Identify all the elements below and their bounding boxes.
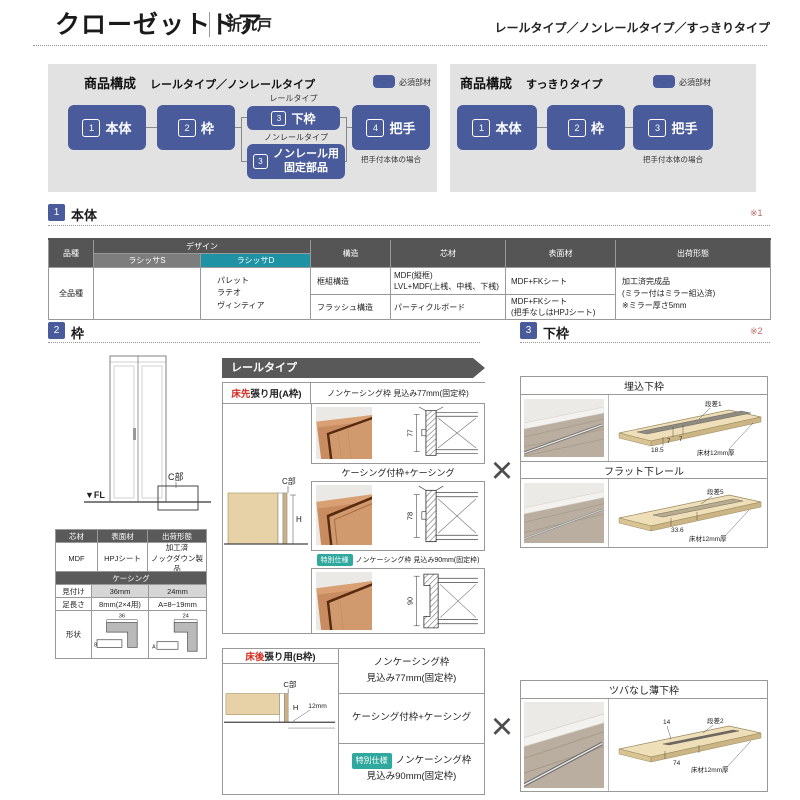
catalog-page: クローゼットドア 折れ戸 レールタイプ／ノンレールタイプ／すっきりタイプ 商品構… [0,0,800,800]
frame-b-left-cell: 床後張り用(B枠) C部 H 12mm [223,649,339,794]
handle-note: 把手付本体の場合 [346,154,436,165]
composition-subtitle: すっきりタイプ [526,76,603,92]
special-spec-badge: 特別仕様 [352,753,392,769]
c-part-label: C部 [168,471,184,482]
frame-b-row2: ケーシング付枠+ケーシング [338,694,485,744]
svg-text:33.6: 33.6 [671,527,684,534]
flow-label-lower-frame: 下枠 [291,110,315,127]
cell-surface-2: MDF+FKシート (把手なしはHPJシート) [506,295,616,320]
cell-divider [608,395,609,461]
legend-swatch [373,75,395,88]
flow-label-body: 本体 [105,118,131,137]
flow-label-frame: 枠 [201,118,214,137]
cell-structure-2: フラッシュ構造 [311,295,391,320]
connector [346,117,347,162]
col-header-lasissa-d: ラシッサD [201,254,311,268]
cross-mark: × [484,452,520,490]
svg-text:段差2: 段差2 [707,716,724,725]
flow-num-2: 2 [568,119,586,137]
section-3-badge: 3 [520,322,537,339]
rail-type-banner: レールタイプ [222,358,485,378]
flow-box-body: 1 本体 [457,105,537,150]
title-divider [209,12,210,37]
section-2-rule [48,342,480,343]
floor-rail-photo [524,399,604,457]
door-corner-photo [316,572,372,630]
lower-frame-2-diagram: 段差5 33.6 床材12mm厚 [613,482,765,544]
cell-lasissa-d-designs: パレット ラテオ ヴィンティア [201,268,311,320]
legend-label: 必須部材 [399,77,431,88]
cross-mark: × [484,708,520,746]
casing-r3-label: 形状 [56,611,92,659]
casing-r2-v1: 8mm(2×4用) [92,598,149,611]
flow-box-body: 1 本体 [68,105,146,150]
section-1-rule [48,225,770,226]
connector [241,117,247,118]
flow-num-4: 4 [366,119,384,137]
casing-r1-label: 見付け [56,585,92,598]
core-spec-table: 芯材 表面材 出荷形態 MDF HPJシート 加工済ノックダウン製品 [55,529,207,576]
door-elevation-diagram: ▼FL C部 [48,350,213,530]
connector [146,127,157,128]
col-header-type: 品種 [49,239,94,268]
svg-text:段差5: 段差5 [707,487,724,496]
section-1-ref: ※1 [750,208,763,219]
svg-text:78: 78 [406,512,415,520]
flow-box-nonrail-parts: 3 ノンレール用固定部品 [247,144,345,179]
casing-r1-v2: 24mm [149,585,207,598]
frame-section-diagram-78: 78 [379,485,481,547]
svg-text:12mm: 12mm [308,703,327,710]
fl-label: ▼FL [85,490,105,500]
frame-a-row1-content: 77 [311,404,485,463]
section-2-title: 枠 [71,323,84,342]
svg-text:18.5: 18.5 [651,447,664,454]
svg-text:床材12mm厚: 床材12mm厚 [691,765,729,774]
door-corner-photo [316,407,372,459]
composition-subtitle: レールタイプ／ノンレールタイプ [150,76,315,92]
flow-label-handle: 把手 [389,118,415,137]
col-header-surface: 表面材 [506,239,616,268]
frame-section-diagram-90: 90 [379,571,481,631]
connector [537,127,547,128]
frame-a-section-diagram: C部 H [224,474,310,566]
flow-num-2: 2 [178,119,196,137]
connector [241,117,242,162]
connector [625,127,633,128]
frame-a-row2-title-real: ケーシング付枠+ケーシング [311,463,485,482]
lower-frame-1-title: 埋込下枠 [521,377,767,395]
frame-b-header: 床後張り用(B枠) [223,649,338,664]
casing-shape-36: 36 8 [92,611,149,659]
cell-structure-1: 框組構造 [311,268,391,295]
col-header-structure: 構造 [311,239,391,268]
door-handle [133,428,136,440]
cell-surface-1: MDF+FKシート [506,268,616,295]
cell-lasissa-s [94,268,201,320]
frame-a-box: 床先張り用(A枠) ノンケーシング枠 見込み77mm(固定枠) C部 H [222,382,485,634]
spec-h-core: 芯材 [56,530,98,543]
branch-rail-label: レールタイプ [247,93,340,104]
cell-core-1: MDF(縦框) LVL+MDF(上桟、中桟、下桟) [391,268,506,295]
col-header-shipping: 出荷形態 [616,239,771,268]
branch-nonrail-label: ノンレールタイプ [247,132,345,143]
frame-a-row3-content: 90 [311,569,485,634]
frame-a-left-cell: C部 H [223,404,312,634]
lower-frame-1-content: 段差1 7 7 18.5 床材12mm厚 [521,395,767,461]
type-list: レールタイプ／ノンレールタイプ／すっきりタイプ [494,19,770,36]
flow-label-frame: 枠 [591,118,604,137]
handle-note: 把手付本体の場合 [628,154,718,165]
frame-b-row3: 特別仕様ノンケーシング枠 見込み90mm(固定枠) [338,744,485,794]
flow-box-handle: 4 把手 [352,105,430,150]
svg-text:A: A [152,644,156,650]
door-style-label: 折れ戸 [227,14,272,35]
cell-core-2: パーティクルボード [391,295,506,320]
special-spec-badge: 特別仕様 [317,554,353,566]
legend-swatch [653,75,675,88]
connector [346,127,352,128]
frame-a-header: 床先張り用(A枠) [223,383,311,404]
cell-divider [608,699,609,791]
spec-h-surface: 表面材 [98,530,148,543]
flow-num-3b: 3 [253,154,268,169]
svg-text:C部: C部 [282,476,296,486]
frame-section-diagram-77: 77 [379,406,481,460]
svg-text:14: 14 [663,719,671,726]
flow-box-frame: 2 枠 [547,105,625,150]
svg-text:H: H [296,515,302,524]
section-3-ref: ※2 [750,326,763,337]
cell-divider [608,479,609,547]
frame-a-row2-content: 78 [311,482,485,550]
svg-text:90: 90 [406,597,415,605]
composition-panel-rail: 商品構成 レールタイプ／ノンレールタイプ 必須部材 レールタイプ ノンレールタイ… [48,64,437,192]
connector [241,161,247,162]
section-3-title: 下枠 [543,323,569,342]
floor-rail-photo [524,702,604,788]
flow-label-nonrail-parts: ノンレール用固定部品 [273,148,339,174]
casing-shape-24: 24 A [149,611,207,659]
casing-r2-v2: A=8~19mm [149,598,207,611]
lower-frame-box: 埋込下枠 段差1 7 [520,376,768,548]
svg-text:24: 24 [182,613,189,619]
svg-text:床材12mm厚: 床材12mm厚 [697,448,735,457]
col-header-core: 芯材 [391,239,506,268]
flow-num-3: 3 [648,119,666,137]
col-header-lasissa-s: ラシッサS [94,254,201,268]
page-header: クローゼットドア 折れ戸 レールタイプ／ノンレールタイプ／すっきりタイプ [0,0,800,48]
door-corner-photo [316,485,372,545]
composition-title: 商品構成 [84,73,136,92]
lower-frame-1-diagram: 段差1 7 7 18.5 床材12mm厚 [613,397,765,459]
frame-b-box: 床後張り用(B枠) C部 H 12mm ノンケーシング枠 見込み77mm(固定枠… [222,648,485,795]
thin-lower-frame-box: ツバなし薄下枠 14 段差2 [520,680,768,792]
col-header-design: デザイン [94,239,311,254]
flow-label-handle: 把手 [671,118,697,137]
flow-box-handle: 3 把手 [633,105,713,150]
flow-box-lower-frame: 3 下枠 [247,106,340,130]
svg-text:36: 36 [119,613,125,619]
svg-text:H: H [293,703,299,712]
svg-text:C部: C部 [283,679,297,689]
thin-lower-frame-diagram: 14 段差2 74 床材12mm厚 [613,713,765,775]
flow-num-3a: 3 [271,111,286,126]
svg-text:77: 77 [407,429,414,436]
frame-a-row3-title: 特別仕様 ノンケーシング枠 見込み90mm(固定枠) [311,550,485,569]
composition-panel-sukkiri: 商品構成 すっきりタイプ 必須部材 1 本体 2 枠 3 把手 把手付本体の場合 [450,64,756,192]
floor-rail-photo [524,483,604,543]
lower-frame-2-title: フラット下レール [521,461,767,479]
spec-h-ship: 出荷形態 [148,530,207,543]
svg-text:74: 74 [673,760,681,767]
casing-table: ケーシング 見付け 36mm 24mm 足長さ 8mm(2×4用) A=8~19… [55,571,207,659]
main-spec-table: 品種 デザイン 構造 芯材 表面材 出荷形態 ラシッサS ラシッサD 全品種 パ… [48,238,771,320]
flow-box-frame: 2 枠 [157,105,235,150]
thin-lower-frame-content: 14 段差2 74 床材12mm厚 [521,699,767,791]
svg-text:床材12mm厚: 床材12mm厚 [689,534,727,543]
lower-frame-2-content: 段差5 33.6 床材12mm厚 [521,479,767,547]
section-1-title: 本体 [71,205,97,224]
frame-b-row1: ノンケーシング枠 見込み77mm(固定枠) [338,649,485,694]
cell-type-all: 全品種 [49,268,94,320]
flow-num-1: 1 [82,119,100,137]
svg-text:8: 8 [94,642,97,648]
header-rule [33,45,767,46]
frame-a-row1-title: ノンケーシング枠 見込み77mm(固定枠) [311,383,485,404]
section-2-badge: 2 [48,322,65,339]
legend-label: 必須部材 [679,77,711,88]
svg-text:段差1: 段差1 [705,399,722,408]
casing-r2-label: 足長さ [56,598,92,611]
cell-shipping: 加工済完成品 (ミラー付はミラー組込済) ※ミラー厚さ5mm [616,268,771,320]
thin-lower-frame-title: ツバなし薄下枠 [521,681,767,699]
frame-b-section-diagram: C部 H 12mm [224,677,337,735]
casing-title: ケーシング [56,572,207,585]
casing-r1-v1: 36mm [92,585,149,598]
composition-title: 商品構成 [460,73,512,92]
section-1-badge: 1 [48,204,65,221]
section-3-rule [520,342,770,343]
flow-num-1: 1 [472,119,490,137]
flow-label-body: 本体 [495,118,521,137]
